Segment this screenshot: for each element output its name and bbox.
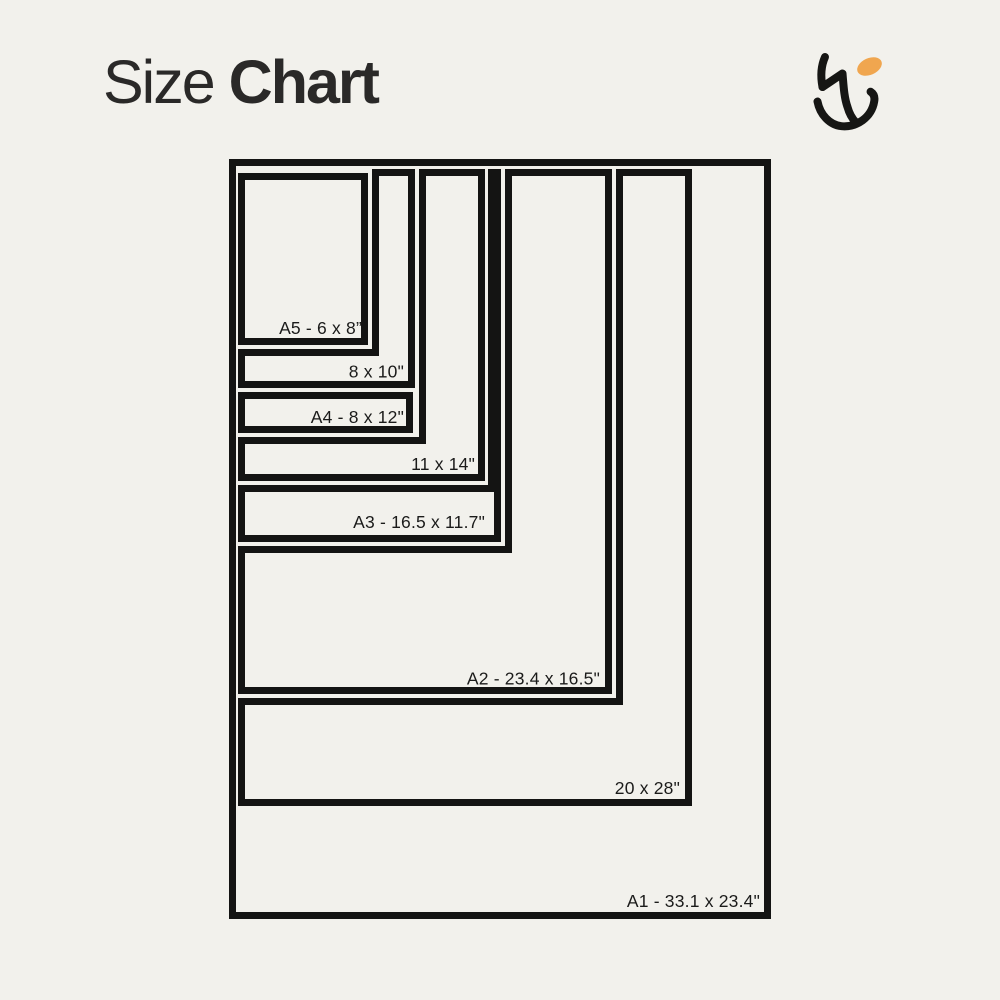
logo-accent-dot <box>854 54 885 80</box>
size-outline-a5 <box>242 177 365 342</box>
size-label-a5: A5 - 6 x 8” <box>279 318 362 338</box>
size-label-a3: A3 - 16.5 x 11.7" <box>353 512 485 532</box>
size-outline-8x10 <box>242 173 412 385</box>
brand-logo-icon <box>818 54 885 127</box>
size-label-a2: A2 - 23.4 x 16.5" <box>467 669 600 689</box>
page-root: SizeChart A5 - 6 x 8” 8 x 10" A4 - 8 x 1… <box>0 0 1000 1000</box>
size-label-a1: A1 - 33.1 x 23.4" <box>627 891 760 911</box>
size-label-a4: A4 - 8 x 12" <box>311 407 404 427</box>
size-label-11x14: 11 x 14" <box>411 454 475 474</box>
size-label-20x28: 20 x 28" <box>615 778 680 798</box>
size-chart-figure: A5 - 6 x 8” 8 x 10" A4 - 8 x 12" 11 x 14… <box>0 0 1000 1000</box>
size-label-8x10: 8 x 10" <box>349 362 404 382</box>
